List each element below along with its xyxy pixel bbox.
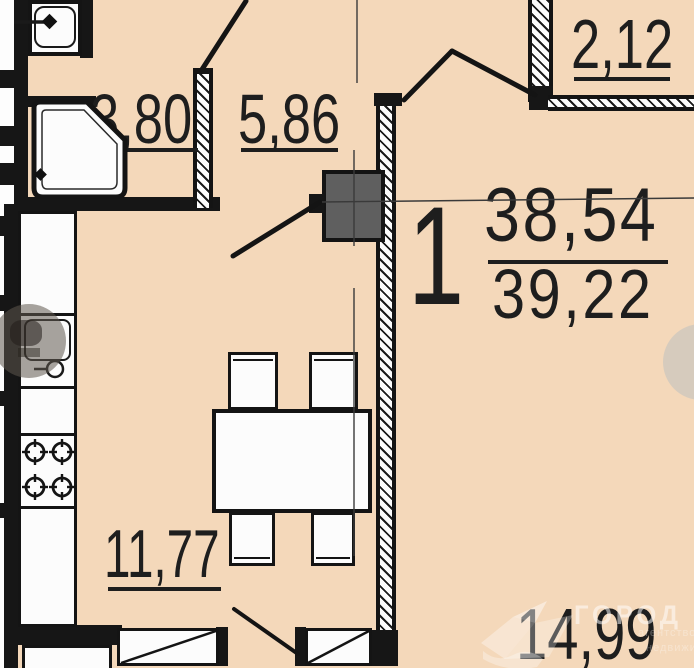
kitchen-door-swing — [233, 202, 320, 256]
stove-burners-icon — [22, 439, 75, 500]
washbasin-icon — [14, 7, 75, 47]
balcony-door-swing — [234, 609, 298, 654]
watermark-subtext: недвижимости — [646, 642, 694, 654]
shower-tray — [34, 102, 125, 197]
room-door-swing — [404, 51, 452, 100]
watermark-subtext: агентство — [638, 627, 694, 639]
entrance-door-swing — [201, 1, 246, 71]
door-swings — [201, 1, 535, 654]
watermark-diamond-logo-icon — [477, 597, 577, 668]
window-glazing-lines — [121, 631, 369, 663]
floor-plan: 3,80 5,86 2,12 1 38,54 39,22 11,77 14,99 — [0, 0, 694, 668]
plan-linework-layer — [0, 0, 694, 668]
room-door-swing — [452, 51, 535, 95]
